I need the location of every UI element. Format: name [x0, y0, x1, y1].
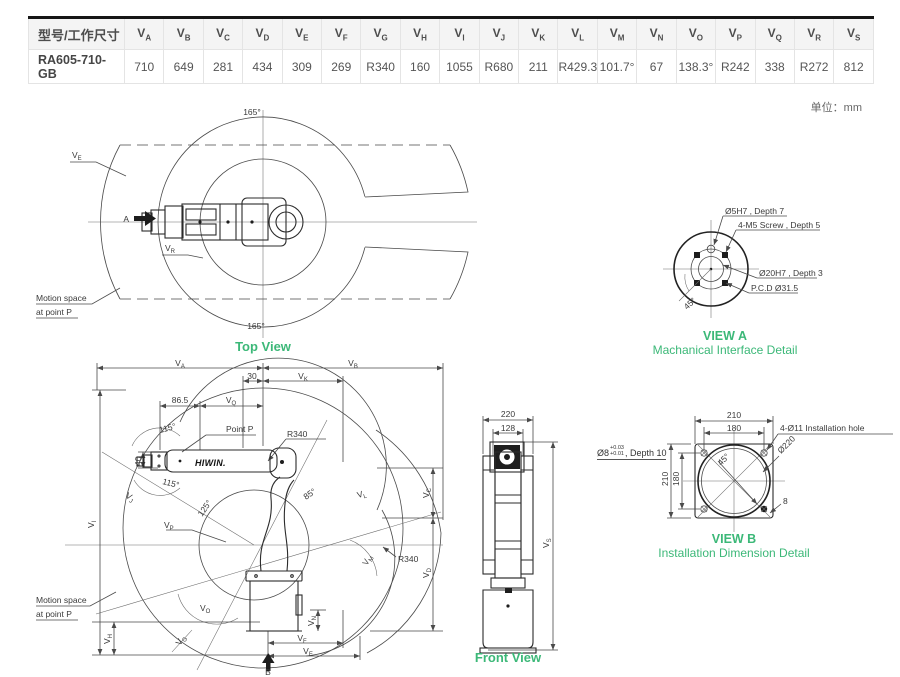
installation-hole-label: 4-Ø11 Installation hole	[780, 423, 865, 433]
bore-label: Ø20H7 , Depth 3	[759, 268, 823, 278]
view-a-drawing: Ø5H7 , Depth 7 4-M5 Screw , Depth 5 Ø20H…	[635, 190, 900, 368]
angle-45-label: 45°	[682, 295, 698, 311]
front-view-title: Front View	[475, 650, 542, 665]
spec-value-cell: R272	[794, 50, 833, 84]
spec-header-cell: VJ	[479, 18, 518, 50]
hiwin-logo: HIWIN.	[195, 458, 226, 468]
spec-header-cell: VN	[637, 18, 676, 50]
boss-diameter-label: Ø220	[775, 433, 797, 455]
vi-label: VI	[86, 520, 98, 528]
ve-label: VE	[72, 150, 82, 162]
r340-bottom-label: R340	[398, 554, 419, 564]
vm-label: VM	[360, 553, 376, 568]
sweep-diagonal-1	[96, 512, 441, 614]
vr-label: VR	[165, 243, 176, 255]
spec-header-cell: VA	[125, 18, 164, 50]
angle-115-bottom: 115°	[162, 476, 181, 490]
spec-value-cell: 160	[400, 50, 439, 84]
spec-header-cell: VM	[597, 18, 636, 50]
angle-125-label: 125°	[195, 498, 213, 518]
point-p-label: Point P	[226, 424, 254, 434]
vp-label: VP	[164, 520, 174, 532]
top-view-drawing: 165° VE A VR Motion space at point P 165…	[30, 100, 480, 362]
angle-85-label: 85°	[301, 486, 317, 502]
view-b-title: VIEW B	[712, 532, 756, 546]
spec-value-cell: R680	[479, 50, 518, 84]
marker-a-label: A	[123, 214, 129, 224]
spec-value-row: RA605-710-GB 710 649 281 434 309 269 R34…	[29, 50, 874, 84]
m5-screw-hole	[722, 280, 728, 286]
top-view-title: Top View	[235, 339, 292, 354]
pcd-label: P.C.D Ø31.5	[751, 283, 798, 293]
dim-210-left-label: 210	[660, 472, 670, 486]
spec-header-cell: VH	[400, 18, 439, 50]
dim-210-top-label: 210	[727, 410, 741, 420]
vn-label: VN	[306, 616, 318, 626]
angle-165-bottom: 165°	[247, 321, 265, 331]
view-b-drawing: 210 180 4-Ø11 Installation hole Ø220 45°…	[635, 400, 900, 568]
pin-label: Ø5H7 , Depth 7	[725, 206, 784, 216]
spec-value-cell: 434	[243, 50, 282, 84]
dim-128-label: 128	[501, 423, 515, 433]
vh-label: VH	[102, 634, 114, 644]
spec-value-cell: 211	[519, 50, 558, 84]
spec-header-cell: VL	[558, 18, 597, 50]
spec-value-cell: 138.3°	[676, 50, 715, 84]
side-view-drawing: HIWIN. VA VB 30 VK 86.5 VQ 115° Point P …	[30, 360, 480, 677]
spec-header-cell: VG	[361, 18, 400, 50]
r340-top-label: R340	[287, 429, 308, 439]
spec-header-cell: VF	[322, 18, 361, 50]
robot-front-silhouette	[480, 442, 536, 653]
view-a-subtitle: Machanical Interface Detail	[653, 343, 798, 357]
spec-value-cell: R242	[716, 50, 755, 84]
spec-value-cell: 269	[322, 50, 361, 84]
motion-space-label-2: at point P	[36, 609, 72, 619]
dim-30-label: 30	[247, 371, 257, 381]
vl-label: VL	[356, 488, 369, 502]
model-value-cell: RA605-710-GB	[29, 50, 125, 84]
spec-value-cell: R340	[361, 50, 400, 84]
r340-lower-arc	[306, 510, 395, 656]
spec-value-cell: 649	[164, 50, 203, 84]
spec-table: 型号/工作尺寸 VA VB VC VD VE VF VG VH VI VJ VK…	[28, 16, 874, 84]
spec-header-cell: VR	[794, 18, 833, 50]
motion-space-label-2: at point P	[36, 307, 72, 317]
model-header-cell: 型号/工作尺寸	[29, 18, 125, 50]
dim-8-label: 8	[783, 496, 788, 506]
view-a-title: VIEW A	[703, 329, 747, 343]
spec-header-cell: VI	[440, 18, 479, 50]
view-b-subtitle: Installation Dimension Detail	[658, 546, 809, 560]
angle-115-top: 115°	[158, 421, 177, 435]
marker-b-label: B	[265, 667, 271, 677]
pin-diameter: Ø8	[597, 448, 609, 458]
dim-865-label: 86.5	[172, 395, 189, 405]
dim-180-left-label: 180	[671, 472, 681, 486]
vo-label: VO	[200, 603, 211, 615]
m5-screw-hole	[722, 252, 728, 258]
spec-value-cell: 812	[834, 50, 874, 84]
motion-space-label-1: Motion space	[36, 595, 87, 605]
spec-header-cell: VS	[834, 18, 874, 50]
spec-value-cell: 67	[637, 50, 676, 84]
spec-header-cell: VP	[716, 18, 755, 50]
angle-165-top: 165°	[243, 107, 261, 117]
unit-note: 单位：mm	[811, 99, 862, 115]
spec-value-cell: 1055	[440, 50, 479, 84]
spec-header-row: 型号/工作尺寸 VA VB VC VD VE VF VG VH VI VJ VK…	[29, 18, 874, 50]
vs-label: VS	[541, 538, 553, 548]
spec-header-cell: VC	[203, 18, 242, 50]
view-a-arrow	[134, 211, 156, 226]
vd-label: VD	[421, 567, 433, 578]
c-mouth-top	[365, 145, 468, 197]
viewb-pin-hole-label: Ø8+0.03+0.01, Depth 10	[597, 446, 666, 460]
spec-value-cell: 101.7°	[597, 50, 636, 84]
spec-header-cell: VK	[519, 18, 558, 50]
vq-label: VQ	[226, 395, 237, 407]
spec-value-cell: 338	[755, 50, 794, 84]
datasheet-page: 型号/工作尺寸 VA VB VC VD VE VF VG VH VI VJ VK…	[0, 0, 900, 677]
motion-space-label-1: Motion space	[36, 293, 87, 303]
spec-header-cell: VB	[164, 18, 203, 50]
front-view-drawing: 220 128 VS Front View	[450, 400, 585, 665]
spec-value-cell: R429.3	[558, 50, 597, 84]
c-mouth-bottom	[365, 247, 468, 299]
motion-envelope-right-bulge	[367, 430, 441, 653]
m5-screw-hole	[694, 252, 700, 258]
spec-value-cell: 710	[125, 50, 164, 84]
dim-40-label: 40	[133, 456, 143, 466]
dim-180-top-label: 180	[727, 423, 741, 433]
pin-depth: , Depth 10	[625, 448, 667, 458]
spec-header-cell: VO	[676, 18, 715, 50]
screw-label: 4-M5 Screw , Depth 5	[738, 220, 820, 230]
dim-220-label: 220	[501, 409, 515, 419]
spec-value-cell: 309	[282, 50, 321, 84]
spec-header-cell: VQ	[755, 18, 794, 50]
spec-header-cell: VD	[243, 18, 282, 50]
spec-header-cell: VE	[282, 18, 321, 50]
spec-value-cell: 281	[203, 50, 242, 84]
